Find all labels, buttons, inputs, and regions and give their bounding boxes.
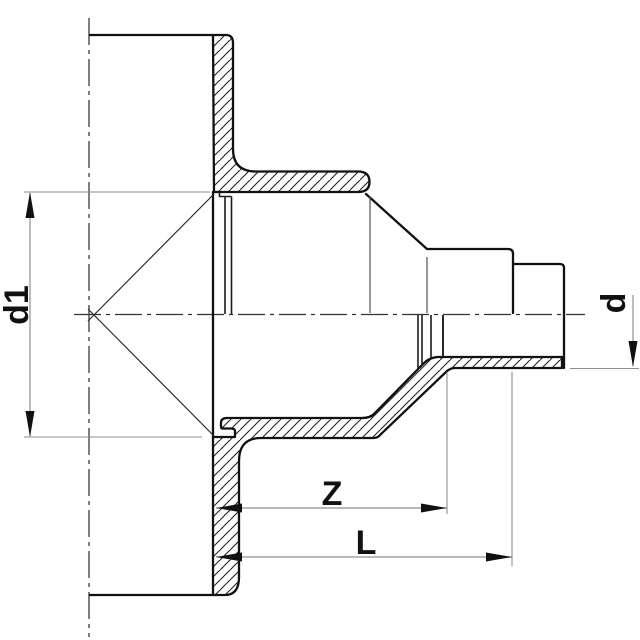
small-end-top-and-face-line [513,264,564,368]
dimension-label-d1: d1 [0,285,36,325]
dimension-label-z: Z [322,475,343,513]
dimension-label-l: L [356,524,377,562]
d1-arrow-down [26,411,35,437]
d1-arrow-up [26,192,35,218]
technical-drawing: d1 d Z L [0,0,640,640]
mid-body-top-line [427,249,513,254]
lower-section-wall [213,357,562,595]
dimension-label-d: d [595,293,633,314]
cone-diagonal-upper [88,194,214,321]
cone-diagonal-lower [88,309,214,436]
upper-section-wall [213,35,370,192]
dimension-l: L [216,372,512,566]
centerlines [74,18,585,637]
cone-top-line [366,194,427,249]
z-arrow-right [421,504,447,513]
d-arrow-down [629,341,638,367]
dimension-d: d [570,293,639,369]
l-arrow-right [486,553,512,562]
mouth-ridge-edges [220,192,232,314]
reducer-section-canvas: d1 d Z L [0,0,640,640]
